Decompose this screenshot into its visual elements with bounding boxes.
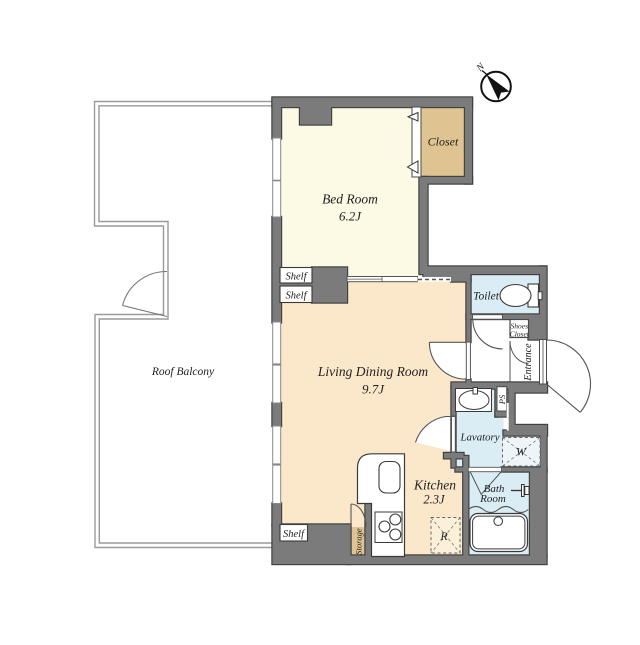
svg-text:Toilet: Toilet (473, 291, 500, 303)
svg-text:W: W (516, 445, 527, 459)
svg-text:R: R (439, 529, 448, 543)
svg-text:Roof Balcony: Roof Balcony (151, 366, 215, 378)
svg-text:PS: PS (497, 394, 507, 405)
svg-text:2.3J: 2.3J (423, 493, 446, 507)
svg-text:Shelf: Shelf (283, 529, 306, 540)
svg-text:Closet: Closet (428, 135, 459, 149)
svg-text:9.7J: 9.7J (362, 382, 385, 397)
svg-text:6.2J: 6.2J (339, 209, 362, 224)
svg-text:Kitchen: Kitchen (413, 478, 456, 493)
svg-text:Room: Room (479, 493, 506, 505)
svg-text:Entrance: Entrance (523, 343, 534, 382)
svg-text:Living Dining Room: Living Dining Room (317, 364, 428, 379)
svg-text:Bed Room: Bed Room (322, 192, 378, 207)
svg-text:Storage: Storage (353, 528, 363, 555)
svg-text:Shelf: Shelf (286, 291, 309, 302)
svg-text:Shelf: Shelf (286, 272, 309, 283)
svg-text:Lavatory: Lavatory (460, 432, 500, 444)
svg-text:Closet: Closet (510, 330, 530, 339)
